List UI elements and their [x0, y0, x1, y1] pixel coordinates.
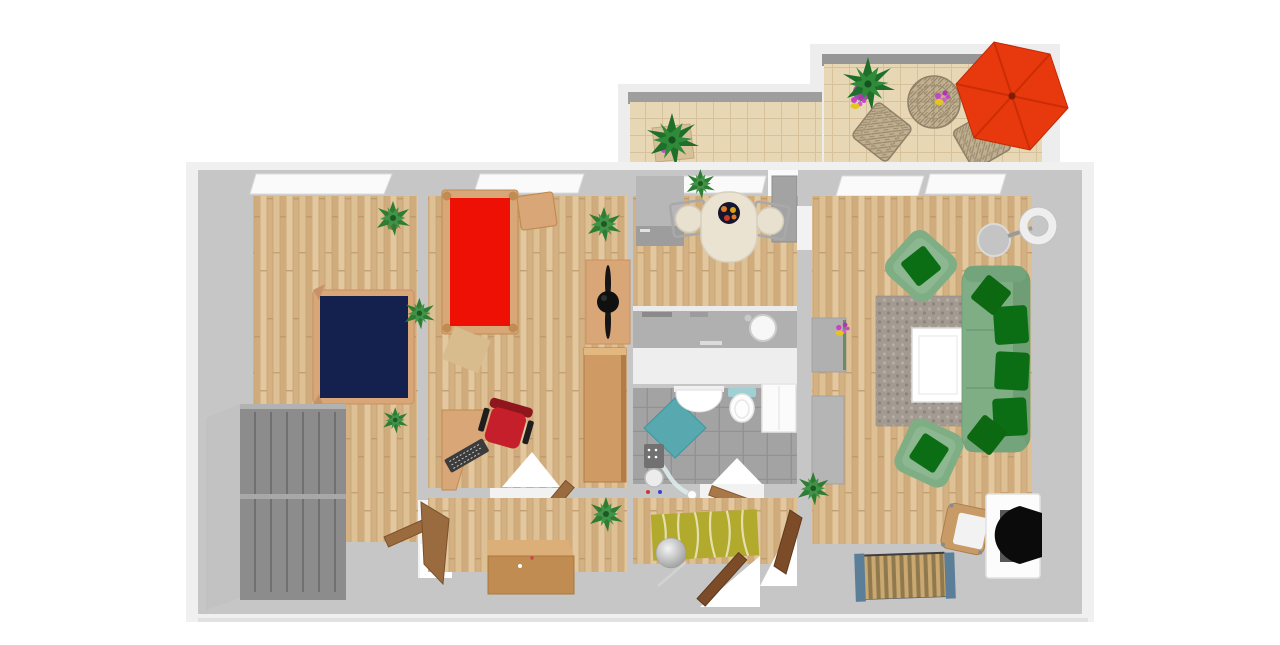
counter-front-face	[633, 348, 797, 384]
window-bedroom	[250, 174, 392, 194]
kitchen-doorway-threshold	[797, 206, 812, 250]
window-living-2	[925, 174, 1006, 194]
gray-wardrobe	[206, 404, 346, 610]
computer-desk	[986, 494, 1042, 578]
single-bed-red	[442, 190, 518, 334]
black-fan-icon	[597, 291, 619, 313]
counter-with-sink	[633, 306, 797, 384]
desk-chair	[939, 502, 992, 556]
wall-cabinet-lower	[812, 396, 844, 484]
slatted-rack	[854, 550, 956, 601]
fruit-bowl	[718, 202, 740, 224]
dining-table	[701, 192, 757, 262]
tall-fridge	[636, 176, 684, 246]
kids-door-threshold	[490, 488, 562, 498]
floorplan-screenshot	[0, 0, 1280, 645]
kitchen-sink	[750, 315, 776, 341]
green-sofa	[962, 266, 1030, 456]
fan-sideboard	[586, 260, 630, 344]
floorplan-rendering	[0, 0, 1280, 645]
window-living-1	[836, 176, 924, 196]
bookcase	[584, 348, 626, 482]
toilet	[728, 388, 756, 422]
double-bed-navy	[313, 284, 414, 410]
parasol-pole	[1009, 93, 1016, 100]
wicker-table	[908, 76, 960, 128]
room-kids	[405, 190, 630, 535]
room-kitchen	[633, 176, 797, 384]
bath-cabinet	[762, 384, 796, 432]
bedside-table	[517, 192, 557, 231]
